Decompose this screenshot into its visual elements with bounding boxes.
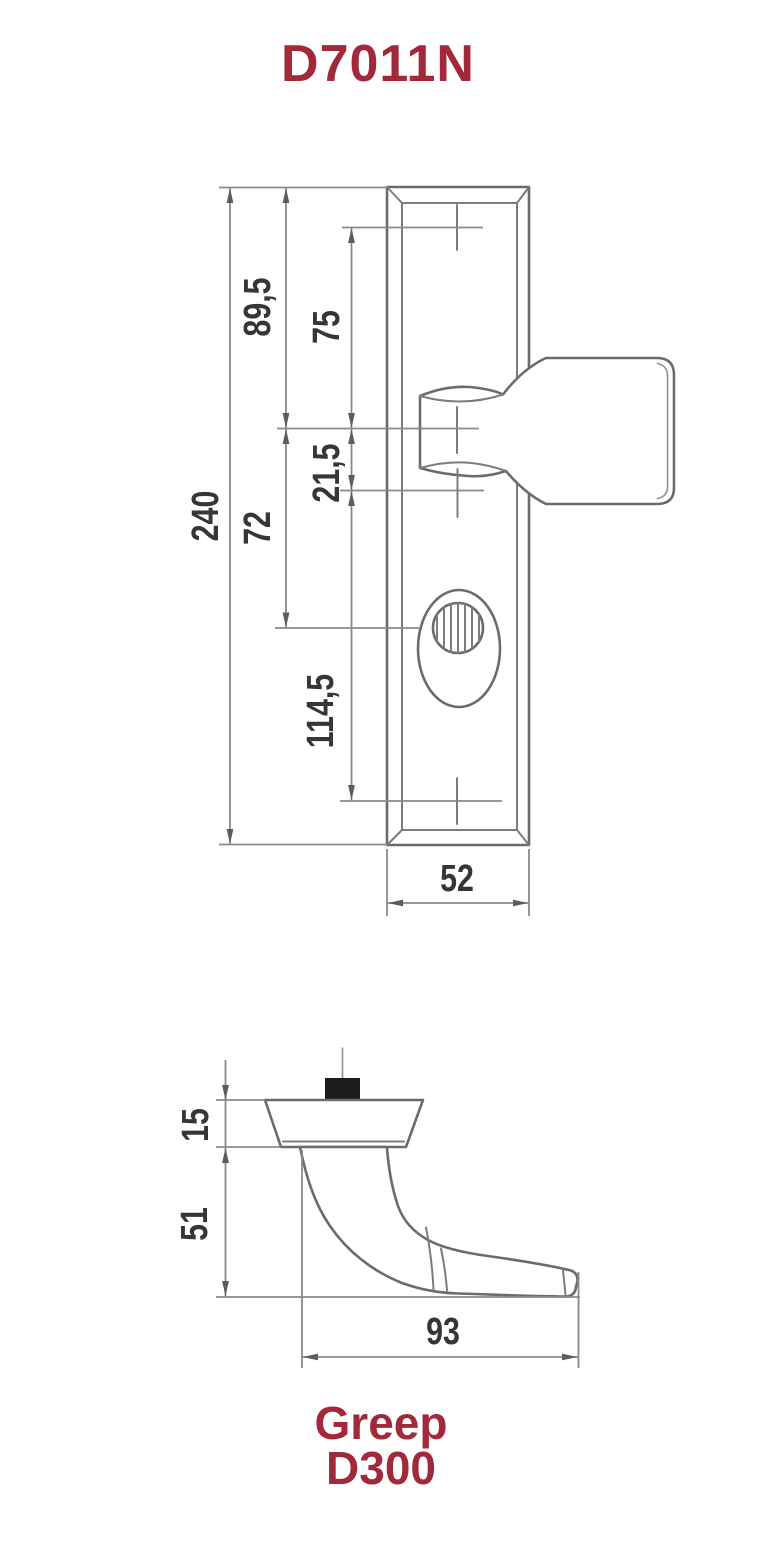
dim-handle-length: 93 bbox=[426, 1311, 460, 1353]
dim-handle-center-to-cylinder: 72 bbox=[237, 511, 279, 545]
product-caption: Greep D300 bbox=[0, 1401, 762, 1491]
cylinder-hole bbox=[418, 590, 500, 707]
dim-top-hole-to-handle-center: 75 bbox=[306, 310, 348, 344]
side-view: 15 51 93 bbox=[174, 1048, 580, 1368]
rose-side bbox=[265, 1100, 423, 1147]
plate-bevel-bottom-left bbox=[387, 830, 402, 845]
dim-plate-top-to-handle-center: 89,5 bbox=[237, 277, 279, 336]
rose-outline bbox=[265, 1100, 423, 1147]
dimension-labels-front: 240 89,5 75 21,5 72 114,5 52 bbox=[185, 277, 474, 900]
handle-side bbox=[300, 1147, 578, 1297]
dim-rose-thickness: 15 bbox=[175, 1108, 217, 1142]
spindle-square bbox=[325, 1078, 360, 1101]
product-drawing-page: D7011N bbox=[0, 0, 776, 1556]
plate-bevel-top-right bbox=[517, 187, 529, 203]
centre-marks bbox=[457, 205, 458, 824]
dim-plate-width: 52 bbox=[440, 858, 474, 900]
dim-handle-projection: 51 bbox=[174, 1207, 216, 1241]
caption-line-2: D300 bbox=[0, 1446, 762, 1491]
keyhole-hatching bbox=[437, 603, 479, 653]
handle-side-outline bbox=[300, 1147, 578, 1297]
dim-lower-hole-to-bottom-hole: 114,5 bbox=[300, 674, 342, 748]
technical-drawing-svg: 240 89,5 75 21,5 72 114,5 52 bbox=[0, 0, 776, 1556]
front-view: 240 89,5 75 21,5 72 114,5 52 bbox=[185, 187, 674, 916]
plate-bevel-bottom-right bbox=[517, 830, 529, 845]
caption-line-1: Greep bbox=[0, 1401, 762, 1446]
plate-bevel-top-left bbox=[387, 187, 402, 203]
plate-inner-face bbox=[402, 203, 517, 830]
dim-plate-height: 240 bbox=[185, 491, 227, 542]
dim-handle-center-to-lower-hole: 21,5 bbox=[306, 443, 348, 502]
